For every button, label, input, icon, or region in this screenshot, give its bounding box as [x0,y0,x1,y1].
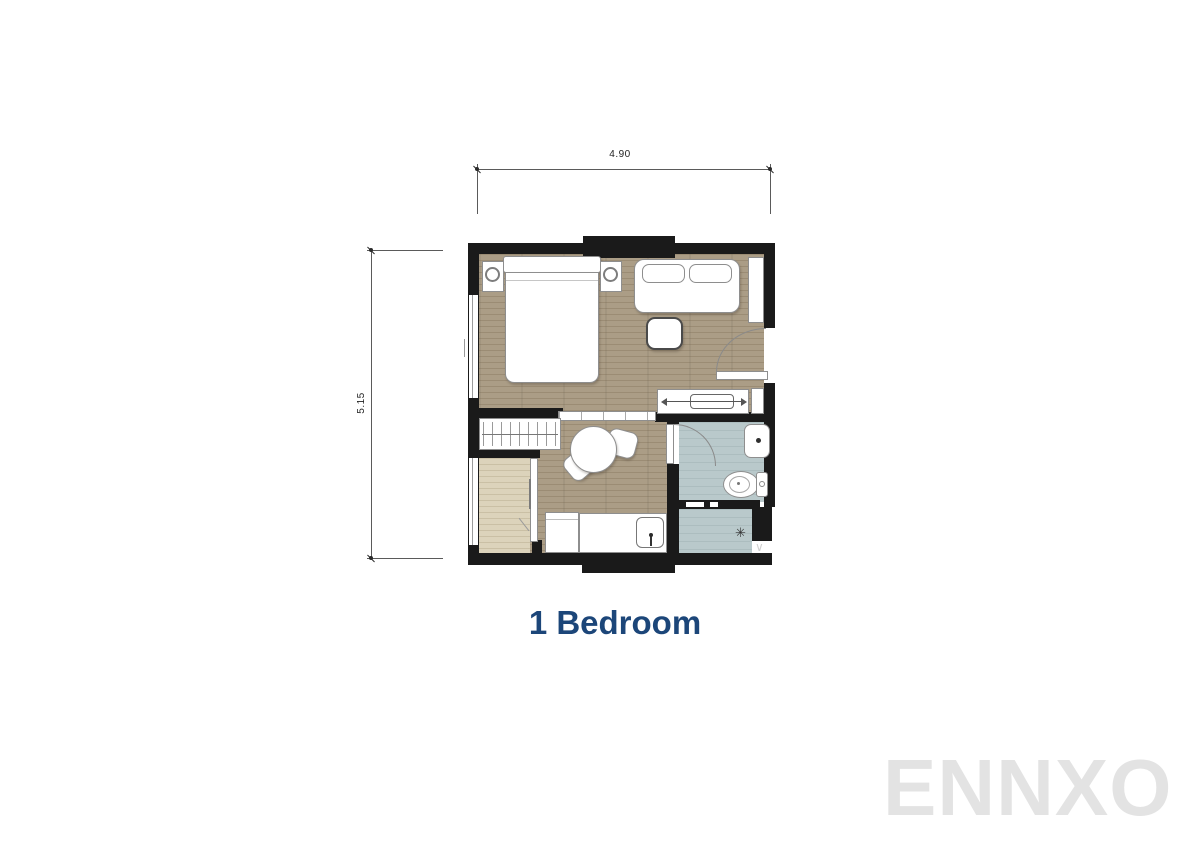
tv-slide-arrow [666,401,742,402]
side-table [646,317,683,350]
wardrobe-rail [482,434,558,435]
entry-door-leaf [716,371,768,380]
wardrobe [479,418,561,450]
floor-plan-image: 4.90 5.15 [0,0,1200,857]
sofa-cushion [689,264,732,283]
dimension-height-label: 5.15 [356,361,368,445]
dimension-width-label: 4.90 [570,149,670,161]
dimension-top-line [477,169,770,170]
window-marker [464,339,465,357]
bed-headboard [503,256,601,273]
shower-glass-gap [686,502,704,507]
refrigerator [545,512,579,553]
dimension-left-extension-bottom [367,558,443,559]
fridge-line [546,519,578,520]
floor-plan-page: { "floor_plan": { "title": "1 Bedroom", … [0,0,1200,857]
shower-head-icon: ✳ [735,526,746,539]
balcony-floor [479,458,530,553]
dimension-left-line [371,250,372,558]
lamp-left [485,267,500,282]
bathroom-door-leaf [666,424,674,464]
toilet-dot [737,482,740,485]
wall-shower-right [752,507,772,541]
shower-glass-gap [710,502,718,507]
bed-sheet-line [506,280,598,281]
toilet-tank-button [759,481,765,487]
wall-top-ledge [583,236,675,258]
bathroom-sink-drain [756,438,761,443]
balcony-window [469,458,478,545]
lamp-right [603,267,618,282]
dimension-left-extension-top [367,250,443,251]
door-handle [529,479,531,509]
kitchen-faucet [650,536,652,546]
kitchen-faucet-dot [649,533,653,537]
sofa-cushion [642,264,685,283]
dining-table [570,426,617,473]
bedroom-window [469,295,478,398]
corner-watermark-mark: ∨ [755,541,764,553]
wall-bedroom-divider [468,408,563,418]
console-side-shelf [751,388,764,414]
wall-wardrobe-bottom [468,450,540,458]
wall-bottom-ledge [582,564,675,573]
arrow-right-icon [741,398,747,406]
plan-title: 1 Bedroom [450,604,780,642]
tall-cabinet [748,257,764,323]
arrow-left-icon [661,398,667,406]
balcony-sliding-door [530,458,538,542]
vanity-counter [558,411,656,421]
bed [505,272,599,383]
watermark-logo: ENNXO [883,748,1173,828]
